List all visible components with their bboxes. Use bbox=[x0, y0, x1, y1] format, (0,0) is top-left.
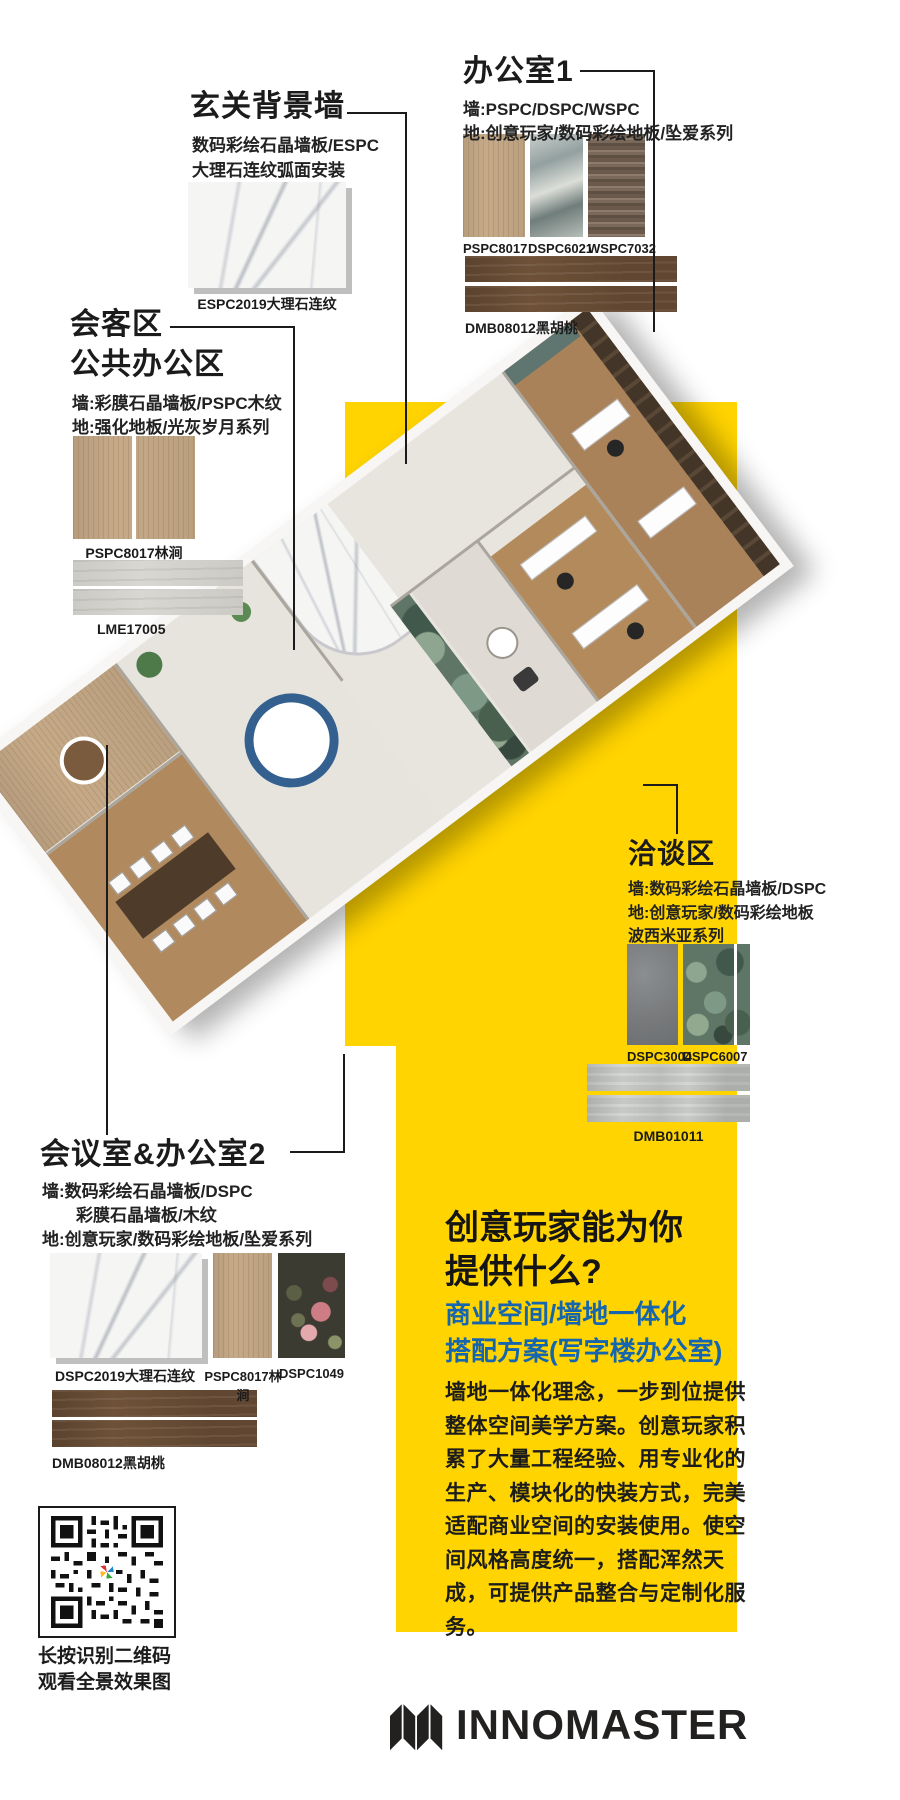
swatch-dspc3004 bbox=[627, 944, 678, 1045]
callout-line-negotiation-v bbox=[676, 784, 678, 834]
negotiation-title: 洽谈区 bbox=[628, 838, 715, 870]
promo-subheading-line2: 搭配方案(写字楼办公室) bbox=[445, 1333, 722, 1370]
plank-dmb08012-label: DMB08012黑胡桃 bbox=[465, 318, 578, 338]
qr-caption-line2: 观看全景效果图 bbox=[38, 1670, 171, 1696]
reception-title-2: 公共办公区 bbox=[70, 348, 225, 383]
promo-body: 墙地一体化理念，一步到位提供整体空间美学方案。创意玩家积累了大量工程经验、用专业… bbox=[445, 1376, 747, 1644]
qr-caption-line1: 长按识别二维码 bbox=[38, 1644, 171, 1670]
swatch-dspc3004-label: DSPC3004 bbox=[627, 1049, 678, 1064]
promo-heading-line2: 提供什么? bbox=[445, 1250, 683, 1294]
swatch-dspc6021 bbox=[530, 134, 583, 237]
plank-dmb01011-b bbox=[587, 1095, 750, 1122]
plank-dmb01011-a bbox=[587, 1064, 750, 1091]
plank-lme17005-b bbox=[73, 589, 243, 615]
entrance-title: 玄关背景墙 bbox=[190, 90, 345, 125]
callout-line-office1-h bbox=[580, 70, 655, 72]
callout-line-entrance-h bbox=[347, 112, 405, 114]
office1-wall: 墙:PSPC/DSPC/WSPC bbox=[463, 95, 640, 120]
plank-dmb08012-2-label: DMB08012黑胡桃 bbox=[52, 1453, 165, 1473]
desk bbox=[572, 584, 650, 649]
chair bbox=[172, 913, 196, 937]
office-chair bbox=[553, 569, 577, 593]
entrance-desc-2: 大理石连纹弧面安装 bbox=[192, 156, 345, 181]
negotiation-floor-2: 波西米亚系列 bbox=[628, 922, 724, 946]
promo-subheading-line1: 商业空间/墙地一体化 bbox=[445, 1296, 722, 1333]
office1-floor: 地:创意玩家/数码彩绘地板/坠爱系列 bbox=[463, 119, 733, 144]
swatch-pspc8017-2-label: PSPC8017林涧 bbox=[200, 1366, 286, 1404]
brand-logo: INNOMASTER bbox=[388, 1698, 748, 1752]
conference-wall-1: 墙:数码彩绘石晶墙板/DSPC bbox=[42, 1177, 253, 1202]
swatch-dspc1049 bbox=[278, 1253, 345, 1358]
panel-pspc8017-label: PSPC8017林涧 bbox=[73, 543, 195, 563]
negotiation-floor-1: 地:创意玩家/数码彩绘地板 bbox=[628, 899, 814, 923]
swatch-dspc6021-label: DSPC6021 bbox=[528, 241, 586, 256]
promo-heading: 创意玩家能为你 提供什么? bbox=[445, 1206, 683, 1294]
callout-line-conference-left-v bbox=[106, 745, 108, 1135]
panel-divider bbox=[734, 944, 737, 1045]
plank-dmb08012-a bbox=[465, 256, 677, 282]
conference-wall-2: 彩膜石晶墙板/木纹 bbox=[76, 1201, 217, 1226]
reception-floor: 地:强化地板/光灰岁月系列 bbox=[72, 413, 269, 438]
swatch-pspc8017 bbox=[463, 134, 525, 237]
callout-line-office1-v bbox=[653, 70, 655, 332]
plank-dmb01011-label: DMB01011 bbox=[587, 1128, 750, 1144]
desk bbox=[520, 515, 598, 580]
swatch-wspc7032-label: WSPC7032 bbox=[588, 241, 648, 256]
swatch-dspc1049-label: DSPC1049 bbox=[278, 1366, 345, 1381]
panel-pspc8017 bbox=[73, 436, 195, 539]
callout-line-conference-right-v bbox=[343, 1054, 345, 1153]
innomaster-logo-mark bbox=[388, 1698, 446, 1752]
conference-floor: 地:创意玩家/数码彩绘地板/坠爱系列 bbox=[42, 1225, 312, 1250]
callout-line-reception-v bbox=[293, 326, 295, 650]
office-chair bbox=[604, 436, 628, 460]
office1-title: 办公室1 bbox=[463, 55, 574, 90]
entrance-desc-1: 数码彩绘石晶墙板/ESPC bbox=[192, 131, 379, 156]
qr-code[interactable] bbox=[38, 1506, 176, 1638]
plank-lme17005-a bbox=[73, 560, 243, 586]
desk bbox=[637, 486, 697, 538]
plant bbox=[131, 647, 167, 683]
chair bbox=[214, 882, 238, 906]
swatch-pspc8017-label: PSPC8017 bbox=[463, 241, 525, 256]
swatch-wspc7032 bbox=[588, 134, 645, 237]
negotiation-wall: 墙:数码彩绘石晶墙板/DSPC bbox=[628, 875, 826, 899]
chair bbox=[151, 929, 175, 953]
swatch-dspc2019 bbox=[50, 1253, 202, 1358]
callout-line-reception-h bbox=[170, 326, 293, 328]
swatch-espc2019 bbox=[188, 182, 346, 288]
round-sofa bbox=[226, 675, 358, 807]
swatch-dspc2019-label: DSPC2019大理石连纹 bbox=[55, 1366, 195, 1386]
reception-title-1: 会客区 bbox=[70, 308, 163, 343]
brand-logo-text: INNOMASTER bbox=[456, 1701, 748, 1749]
side-table bbox=[480, 621, 525, 666]
plank-dmb08012-2b bbox=[52, 1420, 257, 1447]
swatch-dspc6007 bbox=[683, 944, 750, 1045]
swatch-dspc6007-label: DSPC6007 bbox=[680, 1049, 750, 1064]
office-chair bbox=[624, 619, 648, 643]
swatch-pspc8017-2 bbox=[213, 1253, 272, 1358]
swatch-espc2019-label: ESPC2019大理石连纹 bbox=[188, 294, 346, 314]
qr-center-logo bbox=[98, 1563, 116, 1581]
callout-line-entrance-v bbox=[405, 112, 407, 464]
callout-line-conference-right-h bbox=[290, 1151, 345, 1153]
chair bbox=[193, 898, 217, 922]
promo-heading-line1: 创意玩家能为你 bbox=[445, 1206, 683, 1250]
promo-subheading: 商业空间/墙地一体化 搭配方案(写字楼办公室) bbox=[445, 1296, 722, 1370]
panel-divider bbox=[132, 436, 136, 539]
armchair bbox=[512, 665, 540, 693]
conference-title: 会议室&办公室2 bbox=[40, 1138, 266, 1173]
qr-pattern bbox=[51, 1516, 163, 1628]
poster-canvas: 玄关背景墙 数码彩绘石晶墙板/ESPC 大理石连纹弧面安装 ESPC2019大理… bbox=[0, 0, 900, 1800]
qr-caption: 长按识别二维码 观看全景效果图 bbox=[38, 1644, 171, 1696]
plank-dmb08012-b bbox=[465, 286, 677, 312]
reception-wall: 墙:彩膜石晶墙板/PSPC木纹 bbox=[72, 389, 282, 414]
callout-line-negotiation-h bbox=[643, 784, 678, 786]
plank-lme17005-label: LME17005 bbox=[97, 621, 165, 637]
